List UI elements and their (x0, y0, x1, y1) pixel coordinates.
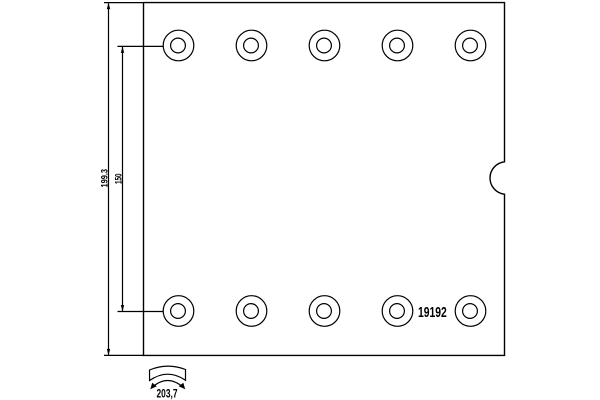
svg-text:203,7: 203,7 (157, 387, 178, 400)
svg-text:150: 150 (113, 174, 124, 185)
svg-text:199.3: 199.3 (99, 169, 110, 188)
svg-text:19192: 19192 (418, 305, 447, 321)
